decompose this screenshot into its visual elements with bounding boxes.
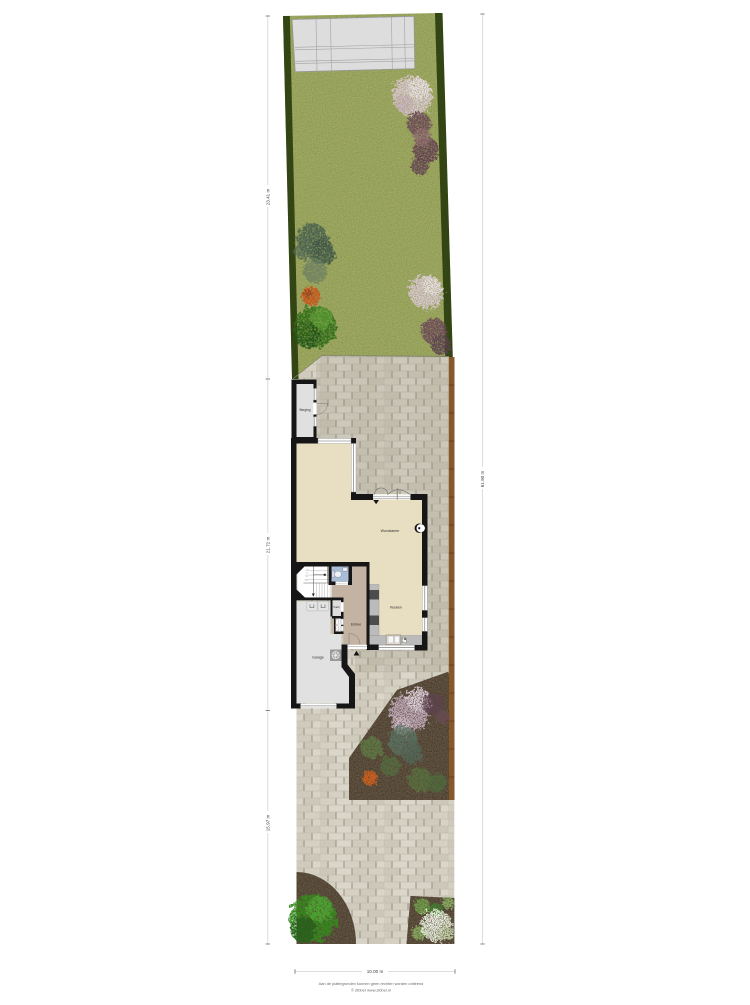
svg-text:Garage: Garage bbox=[312, 656, 324, 660]
svg-text:Aan de plattegronden kunnen ge: Aan de plattegronden kunnen geen rechten… bbox=[319, 981, 424, 986]
svg-text:Entree: Entree bbox=[351, 622, 361, 626]
svg-text:23.41 m: 23.41 m bbox=[265, 189, 270, 206]
svg-text:15.97 m: 15.97 m bbox=[265, 815, 270, 832]
svg-text:Woonkamer: Woonkamer bbox=[381, 529, 401, 533]
svg-text:21.72 m: 21.72 m bbox=[265, 537, 270, 554]
svg-text:Berging: Berging bbox=[300, 408, 311, 412]
svg-text:Kast: Kast bbox=[333, 605, 339, 609]
svg-text:© Zibber www.zibber.nl: © Zibber www.zibber.nl bbox=[351, 987, 391, 992]
svg-text:10.00 m: 10.00 m bbox=[367, 969, 384, 974]
svg-text:61.90 m: 61.90 m bbox=[480, 471, 485, 488]
svg-text:Keuken: Keuken bbox=[390, 606, 402, 610]
